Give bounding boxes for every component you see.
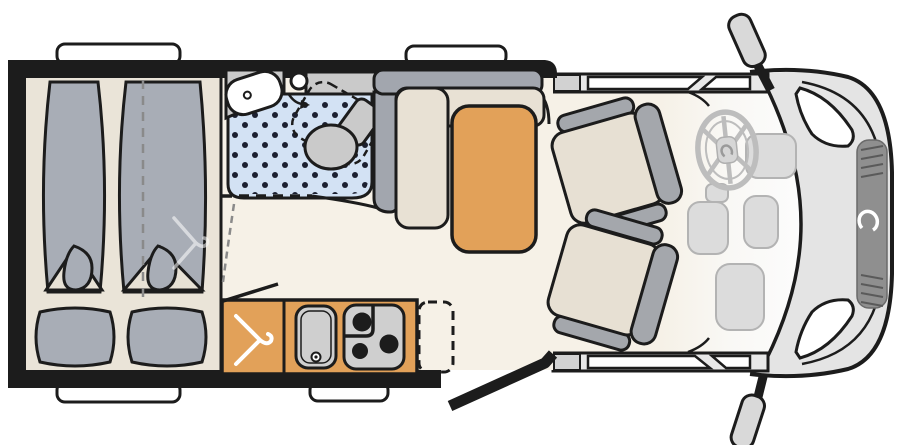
dash-console	[688, 202, 728, 254]
dash-bin-3	[716, 264, 764, 330]
burner-3	[380, 335, 399, 354]
dinette	[374, 70, 549, 252]
mirror-bottom	[729, 371, 774, 445]
partition-wall	[374, 92, 398, 212]
kitchen-faucet-dot	[314, 355, 317, 358]
mirror-bottom-head	[729, 392, 768, 445]
wall-rear	[8, 60, 26, 388]
shower-head	[291, 73, 307, 89]
pillow-left	[36, 308, 114, 366]
twin-beds	[26, 78, 222, 370]
pillow-right	[128, 308, 206, 366]
washroom	[222, 67, 387, 208]
b-pillar-bottom	[554, 354, 580, 370]
mirror-top-head	[725, 11, 768, 70]
cab-window-top-1	[588, 77, 702, 89]
cab-window-bottom-1	[588, 356, 710, 368]
kitchen-block	[222, 300, 453, 374]
dinette-table	[452, 106, 536, 252]
cab-wall-top	[553, 74, 768, 92]
mattress-left-fold-flap	[64, 246, 92, 290]
b-pillar-top	[554, 75, 580, 91]
burner-1	[353, 313, 372, 332]
wall-top-endcap	[545, 60, 557, 78]
dash-bin-2	[744, 196, 778, 248]
floorplan-canvas	[0, 0, 900, 445]
toilet-bowl	[305, 125, 357, 169]
mattress-right-fold-flap	[148, 246, 176, 290]
cab-wall-bottom	[553, 353, 768, 371]
basin-drain	[243, 91, 252, 100]
burner-2	[352, 343, 368, 359]
dinette-bench-side	[396, 88, 448, 228]
campervan-floorplan	[0, 0, 900, 445]
